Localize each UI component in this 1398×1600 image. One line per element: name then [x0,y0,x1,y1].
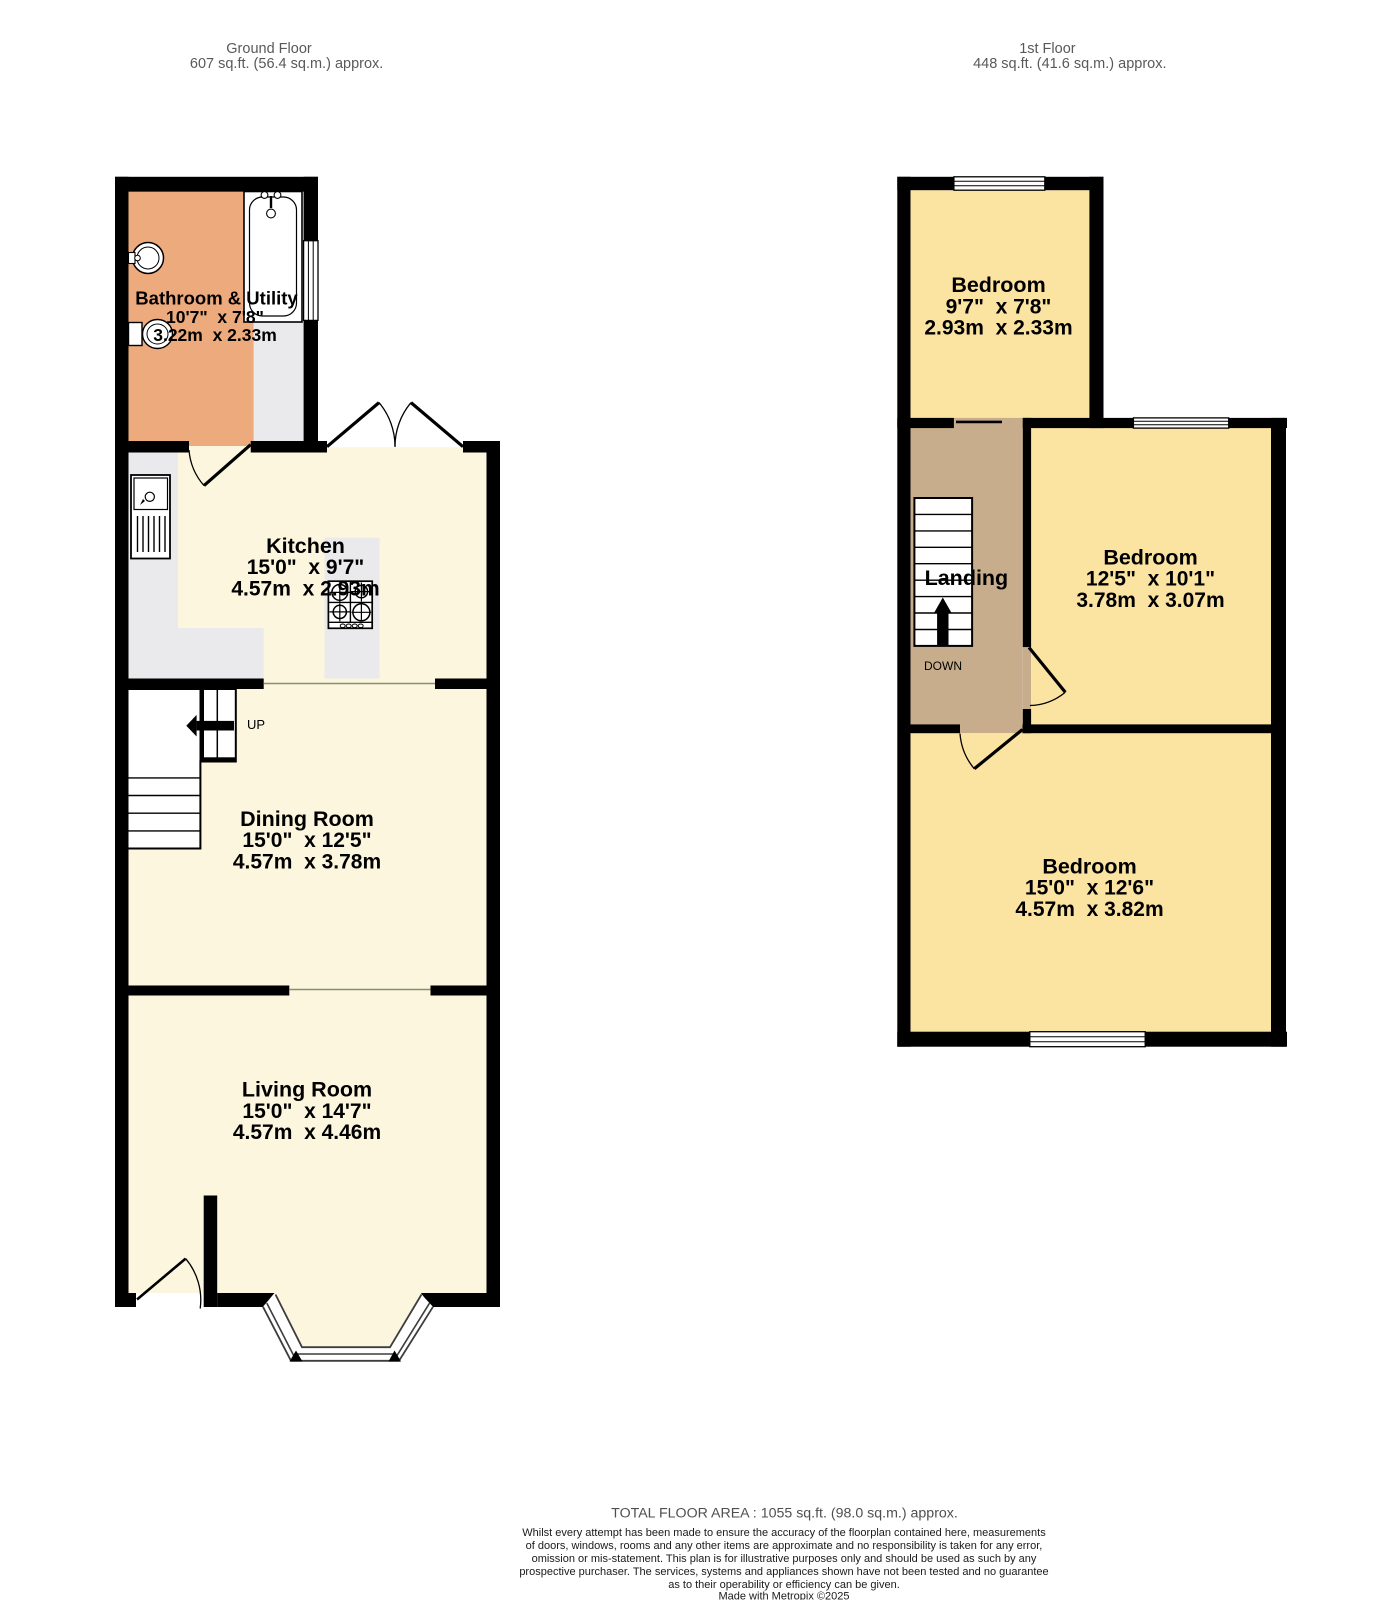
svg-text:3.78m x 3.07m: 3.78m x 3.07m [1076,589,1224,612]
svg-text:Kitchen: Kitchen [266,534,345,558]
svg-text:15'0" x 12'5": 15'0" x 12'5" [242,829,371,852]
svg-text:4.57m x 4.46m: 4.57m x 4.46m [233,1121,381,1144]
svg-text:Living Room: Living Room [242,1078,372,1102]
svg-text:12'5" x 10'1": 12'5" x 10'1" [1086,568,1215,591]
svg-text:Bedroom: Bedroom [1042,855,1136,879]
svg-text:Bathroom & Utility: Bathroom & Utility [135,288,298,309]
svg-text:UP: UP [247,717,265,732]
svg-text:as to their operability or eff: as to their operability or efficiency ca… [668,1579,900,1591]
svg-text:Dining Room: Dining Room [240,807,374,831]
svg-text:15'0" x 12'6": 15'0" x 12'6" [1025,877,1154,900]
svg-text:omission or mis-statement. Thi: omission or mis-statement. This plan is … [532,1553,1037,1565]
svg-text:Bedroom: Bedroom [1103,545,1197,569]
svg-text:TOTAL FLOOR AREA : 1055 sq.ft.: TOTAL FLOOR AREA : 1055 sq.ft. (98.0 sq.… [611,1506,958,1522]
svg-text:3.22m x 2.33m: 3.22m x 2.33m [153,325,277,345]
svg-text:1st Floor: 1st Floor [1019,41,1076,57]
svg-text:prospective purchaser. The ser: prospective purchaser. The services, sys… [519,1566,1048,1578]
svg-text:Whilst every attempt has been: Whilst every attempt has been made to en… [522,1527,1046,1539]
svg-text:DOWN: DOWN [924,659,962,673]
svg-text:4.57m x 3.82m: 4.57m x 3.82m [1015,898,1163,921]
svg-text:Bedroom: Bedroom [951,273,1045,297]
svg-text:4.57m x 3.78m: 4.57m x 3.78m [233,850,381,873]
svg-text:4.57m x 2.93m: 4.57m x 2.93m [231,577,379,600]
svg-text:15'0" x 14'7": 15'0" x 14'7" [242,1100,371,1123]
svg-text:Ground Floor: Ground Floor [226,41,312,57]
svg-text:Landing: Landing [925,566,1009,590]
svg-text:Made with Metropix ©2025: Made with Metropix ©2025 [718,1591,849,1600]
svg-text:607 sq.ft. (56.4 sq.m.) approx: 607 sq.ft. (56.4 sq.m.) approx. [190,56,383,72]
svg-text:2.93m x 2.33m: 2.93m x 2.33m [924,317,1072,340]
svg-text:9'7" x 7'8": 9'7" x 7'8" [946,295,1052,318]
svg-text:448 sq.ft. (41.6 sq.m.) approx: 448 sq.ft. (41.6 sq.m.) approx. [973,56,1166,72]
svg-text:15'0" x 9'7": 15'0" x 9'7" [247,556,364,579]
svg-text:of doors, windows, rooms and a: of doors, windows, rooms and any other i… [526,1540,1043,1552]
